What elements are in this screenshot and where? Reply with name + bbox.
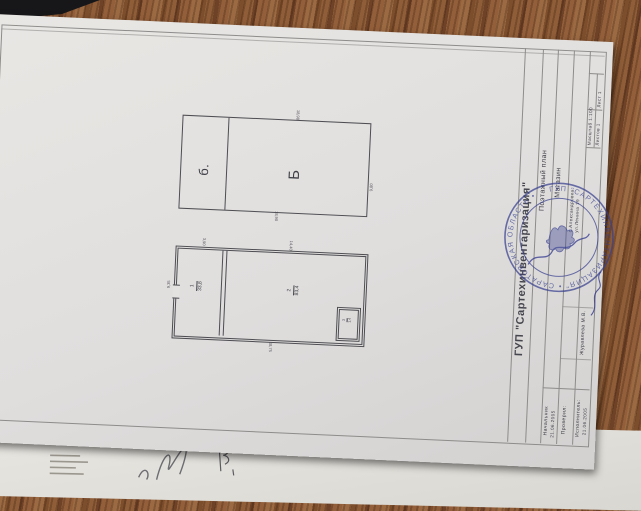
room1-area: 33,8 [196, 281, 204, 291]
plan-upper-dim-bottom: 18,90 [262, 210, 279, 231]
plan-upper-dim-right: 9,80 [368, 173, 374, 191]
plan-upper-divider [224, 118, 229, 210]
plan-lower-dim-bottom: 18,75 [257, 341, 274, 362]
plan-lower-outline [171, 245, 368, 347]
window-mark [172, 284, 180, 298]
floor-plan-sheet: ГУП "Сартехинвентаризация" Поэтажный пла… [0, 14, 613, 470]
room2-label: 2 83,4 [287, 280, 301, 301]
plan-lower-dim-left: 9,35 [166, 270, 172, 288]
illegible-fine-print [47, 451, 92, 486]
room3-area: 1,4 [346, 318, 352, 323]
signature-scribble-right [585, 267, 609, 320]
plan-lower-dim-top-right: 14,40 [277, 240, 294, 261]
room-label-b-large: Б [286, 155, 304, 180]
room2-area: 83,4 [293, 285, 301, 295]
stamp-emblem [544, 224, 576, 254]
photo-of-floor-plan-document: { "title_block": { "organization": "ГУП … [0, 0, 641, 480]
plan-lower-dim-top-left: 3,90 [190, 237, 207, 256]
room1-label: 1 33,8 [190, 276, 204, 297]
plan-upper-dim-top: 18,98 [284, 109, 301, 130]
room-label-b-small: б. [196, 151, 212, 176]
room3-label: 3 1,4 [342, 313, 352, 327]
